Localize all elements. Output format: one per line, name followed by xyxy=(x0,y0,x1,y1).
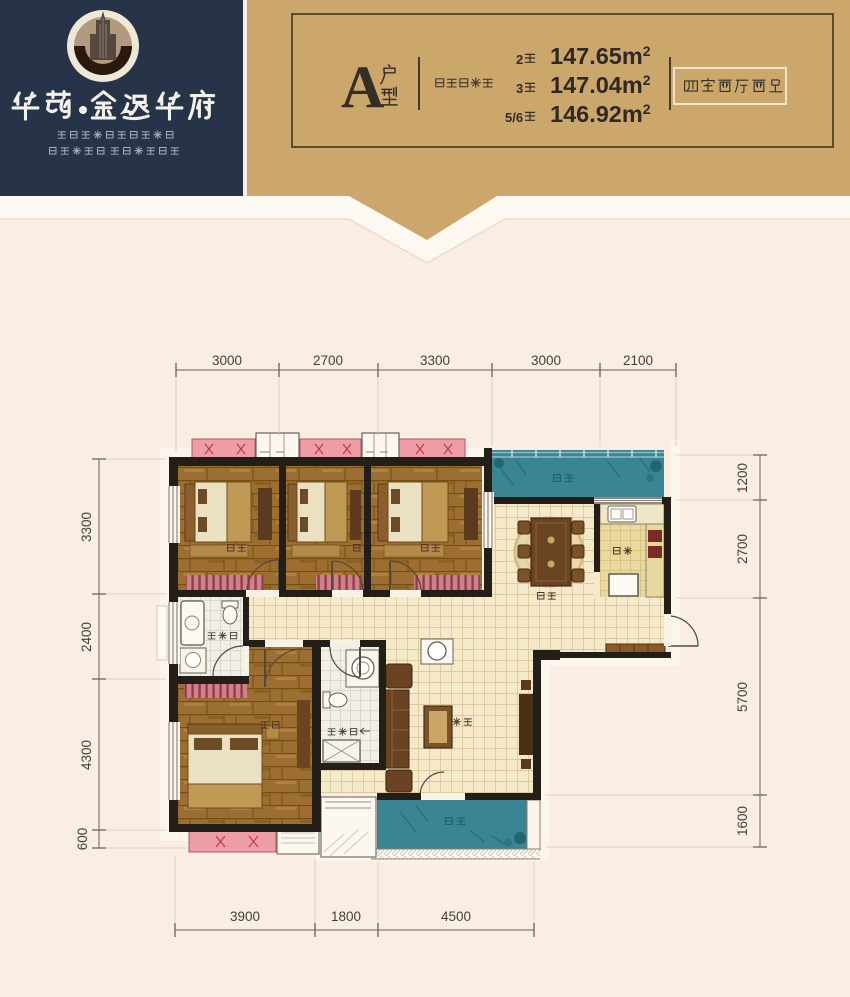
svg-text:4300: 4300 xyxy=(79,740,94,770)
svg-text:2100: 2100 xyxy=(623,353,653,368)
svg-text:3900: 3900 xyxy=(230,909,260,924)
svg-text:5/6: 5/6 xyxy=(505,110,523,125)
svg-text:3000: 3000 xyxy=(212,353,242,368)
svg-text:147.04m2: 147.04m2 xyxy=(550,72,651,98)
svg-text:1200: 1200 xyxy=(735,463,750,493)
svg-text:147.65m2: 147.65m2 xyxy=(550,43,651,69)
svg-text:3000: 3000 xyxy=(531,353,561,368)
svg-text:600: 600 xyxy=(75,828,90,851)
svg-text:2: 2 xyxy=(516,52,523,67)
svg-text:3300: 3300 xyxy=(79,512,94,542)
svg-text:5700: 5700 xyxy=(735,682,750,712)
svg-text:3: 3 xyxy=(516,81,523,96)
svg-text:4500: 4500 xyxy=(441,909,471,924)
svg-text:2400: 2400 xyxy=(79,622,94,652)
svg-text:1800: 1800 xyxy=(331,909,361,924)
svg-text:146.92m2: 146.92m2 xyxy=(550,101,651,127)
svg-text:2700: 2700 xyxy=(313,353,343,368)
svg-text:A: A xyxy=(341,54,384,120)
svg-text:3300: 3300 xyxy=(420,353,450,368)
svg-text:1600: 1600 xyxy=(735,806,750,836)
svg-text:2700: 2700 xyxy=(735,534,750,564)
